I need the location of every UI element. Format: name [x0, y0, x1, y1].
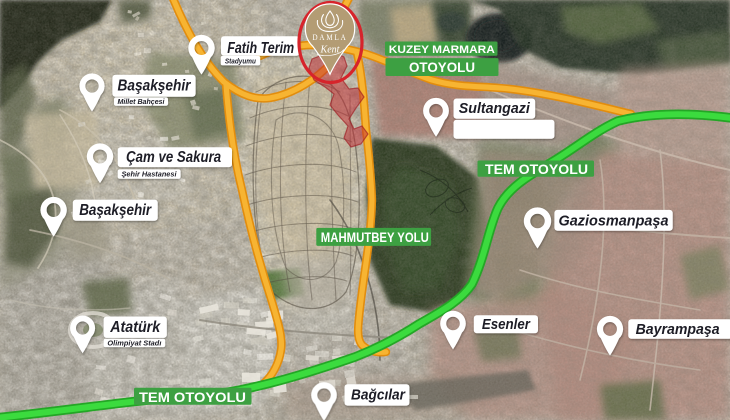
- svg-text:Başakşehir: Başakşehir: [118, 78, 192, 95]
- svg-text:Sultangazi: Sultangazi: [459, 100, 531, 117]
- svg-text:Çam ve Sakura: Çam ve Sakura: [126, 149, 221, 166]
- svg-text:Başakşehir: Başakşehir: [79, 202, 152, 219]
- svg-text:OTOYOLU: OTOYOLU: [409, 60, 475, 75]
- svg-text:Fatih Terim: Fatih Terim: [227, 40, 294, 57]
- svg-text:Atatürk: Atatürk: [109, 319, 161, 336]
- svg-text:DAMLA: DAMLA: [313, 32, 348, 42]
- svg-text:TEM OTOYOLU: TEM OTOYOLU: [139, 389, 246, 405]
- svg-text:Şehir Hastanesi: Şehir Hastanesi: [122, 170, 178, 179]
- svg-text:MAHMUTBEY YOLU: MAHMUTBEY YOLU: [321, 230, 429, 245]
- svg-text:Bağcılar: Bağcılar: [351, 388, 406, 404]
- svg-text:Millet Bahçesi: Millet Bahçesi: [118, 97, 166, 106]
- svg-text:Olimpiyat Stadı: Olimpiyat Stadı: [107, 338, 161, 347]
- svg-text:TEM OTOYOLU: TEM OTOYOLU: [485, 161, 588, 177]
- svg-text:Bayrampaşa: Bayrampaşa: [636, 321, 720, 338]
- svg-text:Stadyumu: Stadyumu: [225, 56, 256, 65]
- svg-text:Esenler: Esenler: [482, 316, 531, 333]
- svg-text:Gaziosmanpaşa: Gaziosmanpaşa: [559, 213, 669, 230]
- svg-text:KUZEY MARMARA: KUZEY MARMARA: [389, 44, 495, 56]
